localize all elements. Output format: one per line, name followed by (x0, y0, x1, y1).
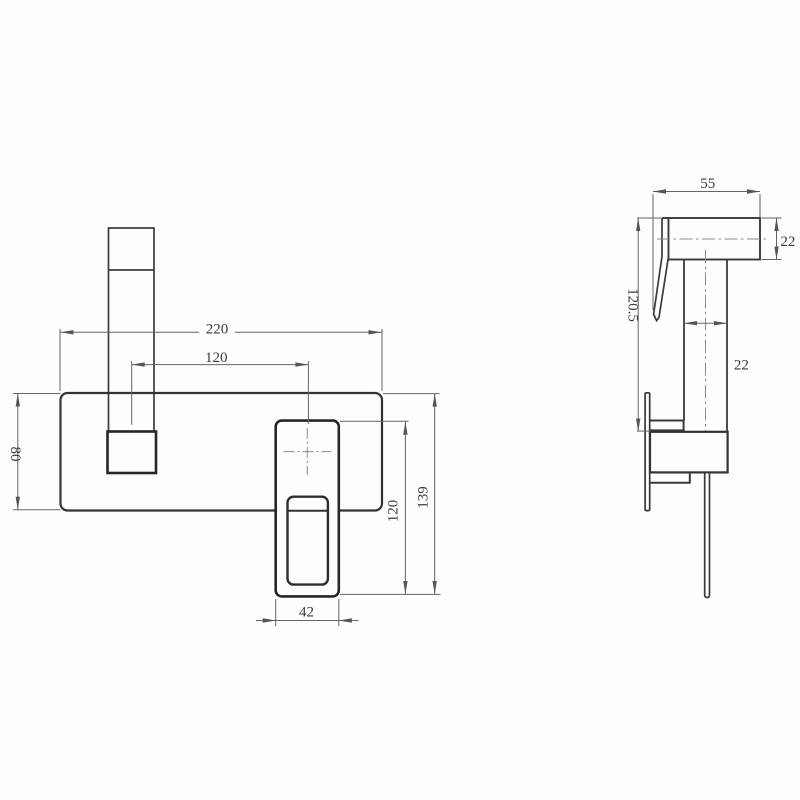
svg-text:120.5: 120.5 (625, 288, 641, 322)
svg-text:42: 42 (299, 605, 314, 621)
svg-text:80: 80 (7, 447, 23, 462)
svg-text:22: 22 (734, 358, 749, 374)
svg-text:139: 139 (416, 486, 432, 509)
svg-text:120: 120 (386, 500, 402, 523)
svg-text:55: 55 (700, 176, 715, 192)
svg-text:120: 120 (205, 350, 228, 366)
svg-text:22: 22 (780, 234, 795, 250)
svg-text:220: 220 (206, 322, 229, 338)
